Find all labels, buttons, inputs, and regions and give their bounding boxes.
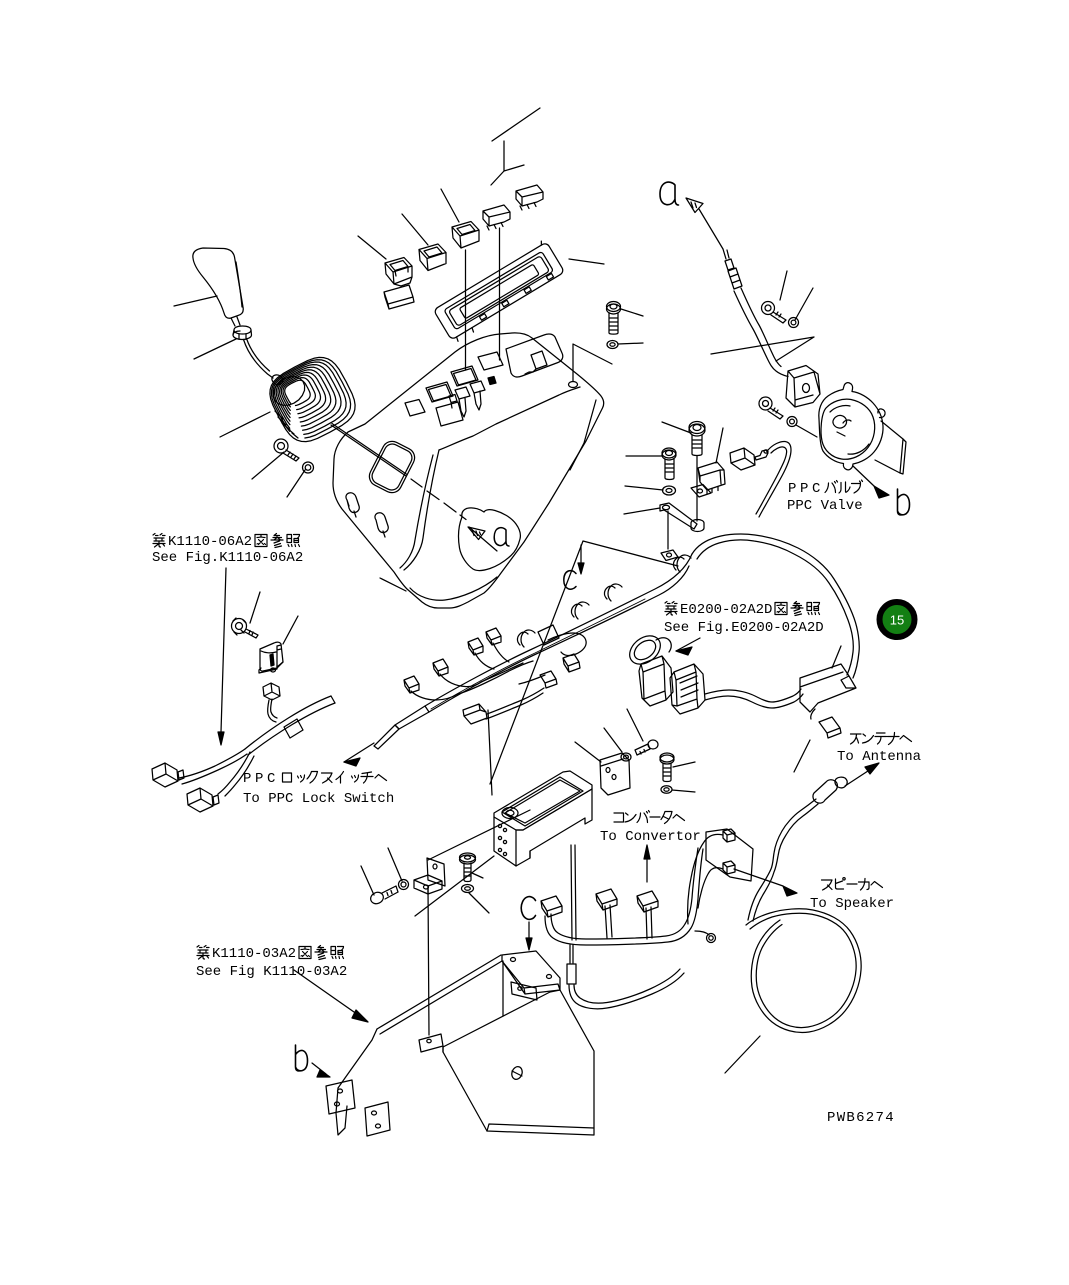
svg-text:PPC: PPC bbox=[243, 771, 279, 787]
svg-text:PPC: PPC bbox=[788, 481, 824, 497]
svg-text:PPC Valve: PPC Valve bbox=[787, 498, 863, 514]
svg-text:See Fig.K1110-06A2: See Fig.K1110-06A2 bbox=[152, 550, 303, 566]
svg-text:See Fig.E0200-02A2D: See Fig.E0200-02A2D bbox=[664, 620, 824, 636]
svg-text:To PPC Lock Switch: To PPC Lock Switch bbox=[243, 791, 394, 807]
svg-text:K1110-03A2: K1110-03A2 bbox=[212, 946, 296, 962]
svg-text:To Speaker: To Speaker bbox=[810, 896, 894, 912]
svg-text:See Fig K1110-03A2: See Fig K1110-03A2 bbox=[196, 964, 347, 980]
svg-text:15: 15 bbox=[890, 613, 904, 628]
svg-text:K1110-06A2: K1110-06A2 bbox=[168, 534, 252, 550]
svg-text:E0200-02A2D: E0200-02A2D bbox=[680, 602, 772, 618]
svg-text:PWB6274: PWB6274 bbox=[827, 1110, 895, 1126]
svg-text:To Convertor: To Convertor bbox=[600, 829, 701, 845]
